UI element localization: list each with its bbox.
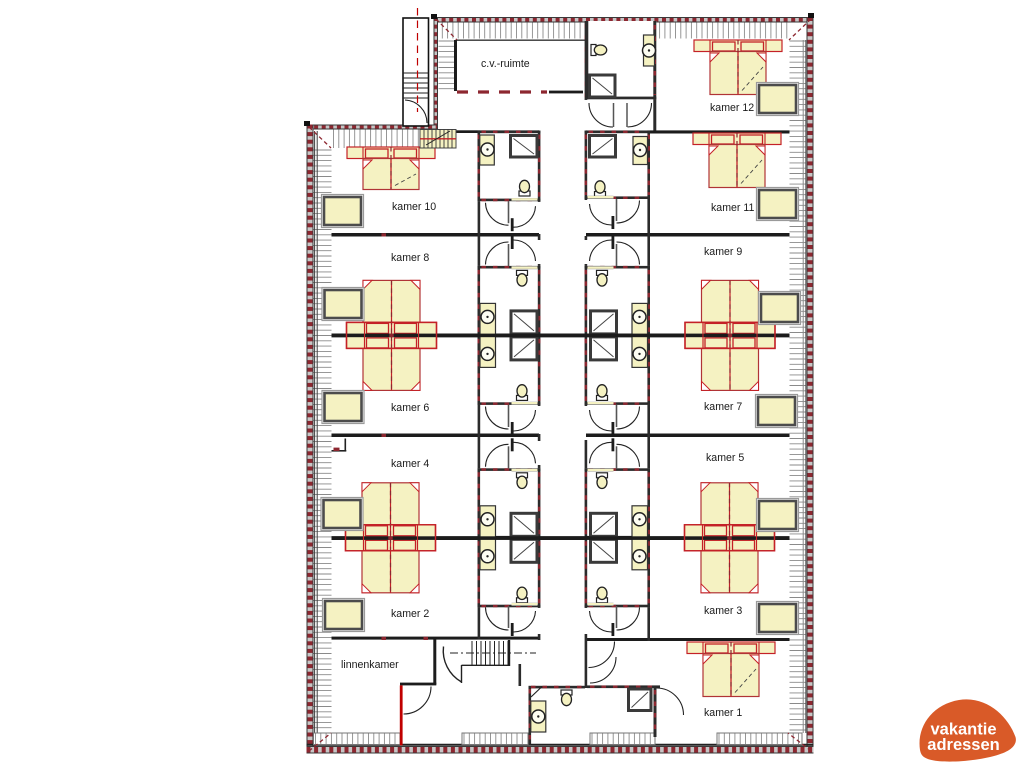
svg-text:kamer 12: kamer 12 xyxy=(710,102,754,114)
svg-text:kamer 6: kamer 6 xyxy=(391,402,429,414)
svg-text:adressen: adressen xyxy=(927,736,999,754)
svg-text:kamer 9: kamer 9 xyxy=(704,246,742,258)
svg-text:c.v.-ruimte: c.v.-ruimte xyxy=(481,58,530,70)
svg-text:kamer 10: kamer 10 xyxy=(392,201,436,213)
svg-text:kamer 8: kamer 8 xyxy=(391,252,429,264)
svg-text:kamer 3: kamer 3 xyxy=(704,605,742,617)
svg-text:kamer 7: kamer 7 xyxy=(704,401,742,413)
svg-text:kamer 4: kamer 4 xyxy=(391,458,429,470)
svg-text:kamer 1: kamer 1 xyxy=(704,707,742,719)
svg-text:kamer 5: kamer 5 xyxy=(706,452,744,464)
svg-text:linnenkamer: linnenkamer xyxy=(341,659,399,671)
svg-text:kamer 2: kamer 2 xyxy=(391,608,429,620)
svg-text:kamer 11: kamer 11 xyxy=(711,202,754,214)
